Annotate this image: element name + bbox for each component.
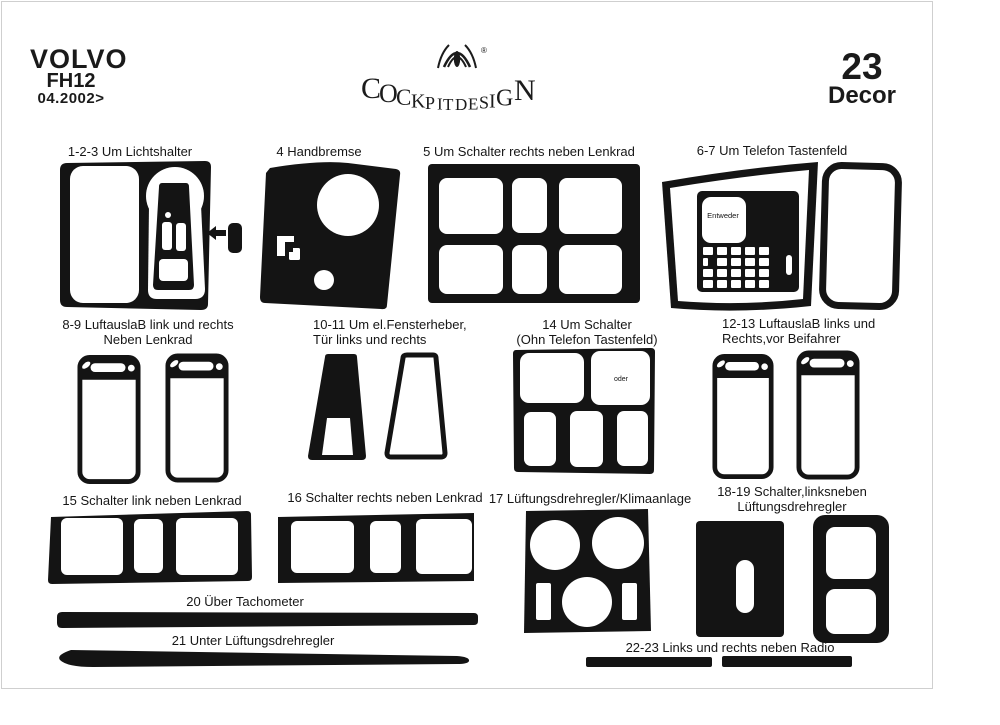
model-date-range: 04.2002> [30, 91, 112, 106]
vehicle-header: VOLVO FH12 04.2002> [30, 46, 112, 106]
part-14-silhouette: oder [508, 346, 658, 478]
part-18-silhouette [694, 519, 786, 639]
part-20-label: 20 Über Tachometer [186, 595, 304, 610]
svg-text:E: E [468, 95, 478, 114]
part-21-label: 21 Unter Lüftungsdrehregler [172, 634, 335, 649]
part-15-silhouette [47, 509, 253, 585]
part-6-7-silhouette: Entweder [658, 158, 903, 313]
svg-text:I: I [489, 91, 496, 113]
part-17-silhouette [519, 507, 654, 637]
svg-text:S: S [479, 93, 489, 113]
part-21-silhouette [53, 648, 473, 670]
part-10-11-label: 10-11 Um el.Fensterheber, Tür links und … [313, 318, 467, 347]
svg-text:N: N [514, 74, 536, 107]
arrow-left-icon [207, 226, 226, 240]
decor-header: 23 Decor [795, 50, 929, 108]
part-5-silhouette [427, 161, 642, 306]
svg-text:D: D [455, 95, 467, 114]
part-20-silhouette [54, 609, 482, 631]
svg-text:G: G [496, 86, 513, 112]
part-16-label: 16 Schalter rechts neben Lenkrad [287, 491, 482, 506]
decor-count: 23 [795, 50, 929, 84]
decor-sheet: VOLVO FH12 04.2002> ® C O C K P I T D E … [0, 0, 1000, 725]
part-4-silhouette [248, 158, 418, 313]
part-22-23-label: 22-23 Links und rechts neben Radio [626, 641, 835, 656]
part-14-label: 14 Um Schalter (Ohn Telefon Tastenfeld) [516, 318, 657, 347]
part-6-7-label: 6-7 Um Telefon Tastenfeld [697, 144, 848, 159]
part-18-19-label: 18-19 Schalter,linksneben Lüftungsdrehre… [717, 485, 867, 514]
part-19-silhouette [811, 513, 891, 645]
svg-text:K: K [411, 91, 426, 113]
brand-name: VOLVO [30, 46, 112, 72]
part-23-silhouette [721, 655, 853, 668]
phone-panel-text: Entweder [707, 211, 739, 220]
svg-text:C: C [361, 72, 381, 105]
part-13-silhouette [796, 348, 860, 482]
svg-text:T: T [443, 95, 454, 114]
cockpit-design-logo: ® C O C K P I T D E S I G N [358, 40, 568, 124]
decor-label: Decor [795, 84, 929, 108]
part-22-silhouette [585, 656, 713, 668]
model-name: FH12 [30, 72, 112, 91]
oder-text: oder [614, 376, 629, 383]
part-10-11-silhouette [303, 352, 463, 464]
part-1-2-3-silhouette [55, 157, 245, 312]
part-16-silhouette [277, 512, 475, 585]
brand-emblem-icon [438, 45, 476, 68]
registered-mark: ® [481, 46, 487, 55]
svg-text:O: O [379, 79, 398, 108]
part-8-silhouette [77, 353, 141, 486]
svg-text:P: P [425, 93, 435, 113]
part-5-label: 5 Um Schalter rechts neben Lenkrad [423, 145, 635, 160]
small-trim-piece [228, 223, 242, 253]
part-12-13-label: 12-13 LuftauslaB links und Rechts,vor Be… [722, 317, 875, 346]
svg-text:C: C [396, 85, 411, 110]
part-9-silhouette [165, 353, 229, 483]
part-17-label: 17 Lüftungsdrehregler/Klimaanlage [489, 492, 691, 507]
part-15-label: 15 Schalter link neben Lenkrad [62, 494, 241, 509]
part-12-silhouette [712, 350, 774, 483]
part-8-9-label: 8-9 LuftauslaB link und rechts Neben Len… [62, 318, 233, 347]
logo-wordmark: C O C K P I T D E S I G N [361, 72, 536, 114]
